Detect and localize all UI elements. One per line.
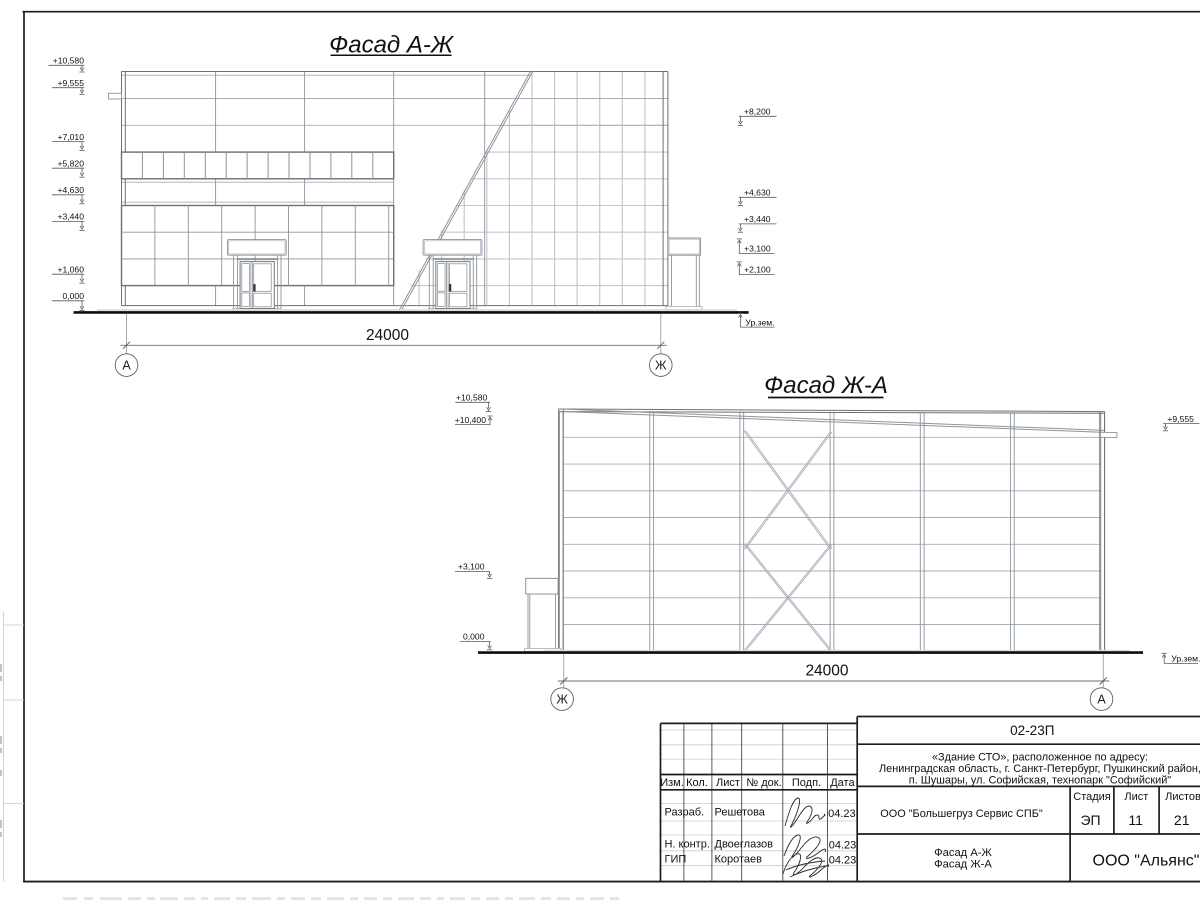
svg-text:Лист: Лист — [1124, 791, 1148, 803]
svg-text:Коротаев: Коротаев — [715, 854, 763, 866]
svg-text:24000: 24000 — [366, 327, 409, 344]
svg-text:Лист: Лист — [716, 777, 740, 789]
svg-text:Ленинградская область, г. Санк: Ленинградская область, г. Санкт-Петербур… — [879, 763, 1200, 775]
svg-text:04.23: 04.23 — [829, 840, 857, 852]
svg-text:ООО "Альянс": ООО "Альянс" — [1093, 852, 1200, 869]
svg-text:Ж: Ж — [556, 693, 568, 707]
svg-text:+9,555: +9,555 — [57, 78, 84, 88]
svg-text:+4,630: +4,630 — [744, 188, 771, 198]
svg-text:ЭП: ЭП — [1080, 812, 1100, 828]
svg-text:ГИП: ГИП — [665, 854, 687, 866]
svg-text:п. Шушары, ул. Софийская, техн: п. Шушары, ул. Софийская, технопарк "Соф… — [909, 775, 1172, 787]
svg-text:+10,580: +10,580 — [456, 393, 488, 403]
svg-text:24000: 24000 — [805, 662, 848, 679]
svg-text:11: 11 — [1128, 812, 1143, 828]
svg-text:А: А — [122, 359, 131, 373]
svg-text:Изм.: Изм. — [660, 777, 684, 789]
svg-text:+5,820: +5,820 — [57, 158, 84, 168]
svg-text:+3,440: +3,440 — [744, 214, 771, 224]
svg-text:«Здание СТО», расположенное по: «Здание СТО», расположенное по адресу: — [932, 751, 1148, 763]
svg-text:+3,440: +3,440 — [57, 212, 84, 222]
svg-text:02-23П: 02-23П — [1010, 723, 1054, 738]
svg-text:+7,010: +7,010 — [57, 132, 84, 142]
svg-text:+9,555: +9,555 — [1167, 414, 1194, 424]
svg-text:Фасад А-Ж: Фасад А-Ж — [934, 847, 992, 859]
svg-text:21: 21 — [1174, 812, 1190, 828]
svg-text:Ур.зем.: Ур.зем. — [745, 317, 774, 327]
svg-text:А: А — [1097, 693, 1106, 707]
svg-text:Разраб.: Разраб. — [665, 807, 705, 819]
svg-text:Ур.зем.: Ур.зем. — [1171, 654, 1200, 664]
svg-text:+3,100: +3,100 — [458, 562, 485, 572]
svg-text:Н. контр.: Н. контр. — [665, 838, 710, 850]
svg-text:+8,200: +8,200 — [744, 107, 771, 117]
svg-text:Фасад А-Ж: Фасад А-Ж — [329, 32, 455, 59]
svg-text:Подп.: Подп. — [792, 777, 821, 789]
svg-text:+2,100: +2,100 — [744, 265, 771, 275]
svg-text:Двоеглазов: Двоеглазов — [715, 838, 774, 850]
svg-text:Стадия: Стадия — [1073, 791, 1111, 803]
svg-text:0,000: 0,000 — [62, 291, 84, 301]
svg-text:Фасад Ж-А: Фасад Ж-А — [764, 372, 888, 399]
svg-text:№ док.: № док. — [746, 777, 781, 789]
svg-text:Фасад Ж-А: Фасад Ж-А — [934, 858, 992, 870]
svg-text:0,000: 0,000 — [463, 632, 485, 642]
svg-text:Кол.: Кол. — [686, 777, 708, 789]
svg-text:+10,580: +10,580 — [53, 56, 85, 66]
svg-text:+1,060: +1,060 — [57, 264, 84, 274]
svg-text:+4,630: +4,630 — [57, 185, 84, 195]
svg-text:Ж: Ж — [655, 359, 667, 373]
svg-text:Листов: Листов — [1165, 791, 1200, 803]
svg-text:Решетова: Решетова — [715, 807, 766, 819]
svg-text:Дата: Дата — [830, 777, 855, 789]
svg-text:04.23: 04.23 — [829, 855, 857, 867]
svg-text:+3,100: +3,100 — [744, 244, 771, 254]
svg-text:ООО "Большегруз Сервис СПБ": ООО "Большегруз Сервис СПБ" — [880, 808, 1043, 820]
svg-text:04.23: 04.23 — [828, 808, 856, 820]
svg-text:+10,400: +10,400 — [455, 415, 487, 425]
